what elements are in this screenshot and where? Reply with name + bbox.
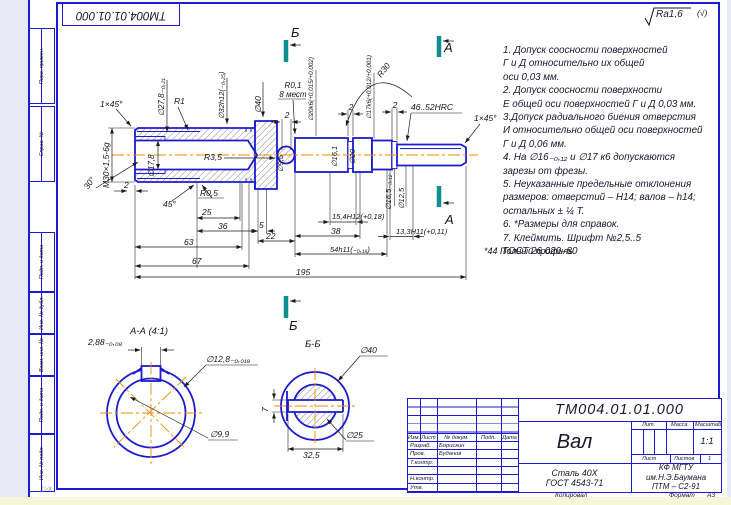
tb-role: Н.контр. [410,475,435,483]
dim-label: Б [291,25,300,40]
tb-org-line1: КФ МГТУ им.Н.Э.Баумана [631,463,721,482]
dim-label: 54h11(₋₀,₁₉) [330,245,370,254]
dim-label: ∅12,8₋₀,₀₁₈ [206,354,251,364]
dim-label: 2 [123,180,129,190]
tb-signature-row [408,467,518,475]
tb-header-col: Лист [420,434,437,441]
tb-name-value: Буданов [439,450,461,458]
tb-line [654,429,655,454]
tb-mass-label: Масса [671,422,688,428]
tb-scale-value: 1:1 [693,429,721,454]
dim-label: 8 мест [279,90,307,99]
title-block: Изм.Лист№ докум.Подп.Дата Разраб.Бориски… [407,398,722,493]
dim-label: 25 [201,207,212,217]
dim-label: ∅12,5 [397,187,406,209]
tb-header-col: Изм. [408,434,420,441]
tb-header-col: № докум. [437,434,476,441]
tb-scale-label: Масштаб [695,422,721,428]
dim-label: ∅20 [348,148,357,164]
format-label: Формат [669,492,695,499]
tb-signature-row: Пров.Буданов [408,450,518,458]
copied-label: Копировал [555,492,587,499]
dim-label: ∅20k6(+0,015/+0,002) [308,57,315,121]
dim-label: ∅17,8 [147,154,156,177]
dim-label: ∅16,5₋₀,₁₂ [384,174,393,210]
dim-label: ∅9,5 [276,154,285,172]
dim-label: 32,5 [303,450,320,460]
dim-label: 45° [163,199,176,209]
tb-part-name: Вал [518,421,631,463]
tb-role: Пров. [410,450,425,458]
tb-sheet-label: Лист [642,456,656,462]
tb-organization: КФ МГТУ им.Н.Э.Баумана ПТМ – С2-91 [631,463,721,492]
dim-label: 7 [260,407,270,412]
tb-signature-row: Н.контр. [408,475,518,483]
dim-label: 195 [296,267,310,277]
tb-signature-row: Т.контр. [408,459,518,467]
dim-label: М30×1,5-6g [101,142,111,188]
tb-material: Сталь 40Х ГОСТ 4543-71 [518,463,631,492]
tb-doc-number: ТМ004.01.01.000 [518,399,721,421]
section-view-b-b [272,356,388,452]
tb-sheets-label: Листов [674,456,694,462]
dim-label: 1×45° [100,99,123,109]
dim-label: ∅32h12(₋₀,₂₅) [217,71,226,119]
dim-label: ∅27,8₋₀,₂₁ [157,78,166,116]
dim-label: 36 [218,221,228,231]
dim-label: ∅25 [346,430,363,440]
dim-label: ∅40 [360,345,377,355]
dim-label: R3,5 [204,152,222,162]
tb-signature-row: Разраб.Борискин [408,442,518,450]
tb-lit-label: Лит. [642,422,655,428]
dim-label: ∅16,1 [330,146,339,167]
dim-label: 2 [392,100,398,110]
dim-label: *44 Полный профиль [484,246,573,256]
tb-org-line2: ПТМ – С2-91 [652,482,700,492]
tb-header-row: Изм.Лист№ докум.Подп.Дата [408,433,518,442]
tb-line [666,421,667,454]
dim-label: 13,3H11(+0,11) [396,227,448,236]
tb-line [643,429,644,454]
tb-line [670,454,671,463]
dim-label: R0,5 [200,188,218,198]
section-view-a-a [100,347,258,464]
dim-label: R0,1 [285,81,302,90]
dim-label: А [444,212,454,227]
dim-label: А-А (4:1) [129,326,168,337]
dim-label: R1 [174,96,185,106]
tb-signature-row: Утв. [408,484,518,492]
dim-label: 63 [184,237,194,247]
dim-label: ∅9,9 [210,429,229,439]
dim-label: 1×45° [474,113,497,123]
dim-label: ∅40 [253,96,263,113]
tb-material-line2: ГОСТ 4543-71 [546,478,604,488]
tb-signature-rows: Разраб.БорискинПров.БудановТ.контр.Н.кон… [408,442,518,492]
origin-marker: ▷x [42,484,52,493]
format-value: А3 [707,492,715,499]
below-title-block-labels: Копировал Формат А3 [407,492,722,504]
dim-label: 15,4H12(+0,18) [332,212,385,221]
dim-label: 5 [259,220,264,230]
dim-label: 67 [192,256,202,266]
drawing-sheet-view: Перв. примен.Справ. №Подп. и датаИнв. № … [0,0,731,505]
dim-label: Б [289,318,298,333]
tb-name-value: Борискин [439,442,465,450]
tb-material-line1: Сталь 40Х [551,468,597,478]
tb-role: Т.контр. [410,459,433,467]
dim-label: 22 [265,231,276,241]
dim-label: R30 [375,61,393,80]
dim-label: А [443,40,453,55]
dim-label: 2,88₋₀,₀₈ [87,337,123,347]
dim-label: Б-Б [305,339,321,350]
dim-label: 2 [284,110,290,120]
dim-label: 30° [81,174,97,191]
tb-role: Утв. [410,484,423,492]
dim-label: 46..52HRC [411,102,454,112]
tb-header-col: Дата [501,434,518,441]
tb-role: Разраб. [410,442,431,450]
dim-label: ∅17k6(+0,012/+0,001) [366,55,373,119]
tb-header-col: Подп. [476,434,501,441]
tb-sheets-value: 1 [708,456,711,462]
tb-line [700,454,701,463]
dim-label: 2 [348,102,354,112]
dim-label: 38 [331,226,341,236]
